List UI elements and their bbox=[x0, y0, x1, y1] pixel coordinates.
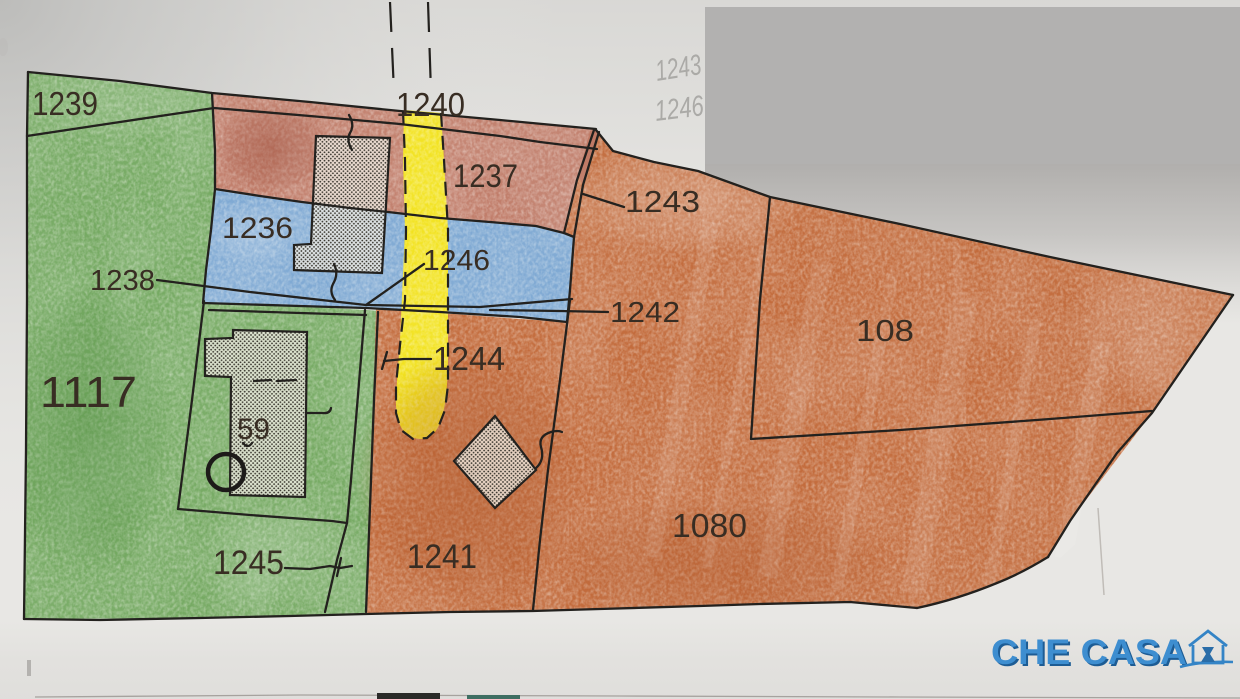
svg-text:108: 108 bbox=[856, 313, 914, 348]
svg-text:1245: 1245 bbox=[213, 544, 284, 582]
svg-text:1117: 1117 bbox=[40, 368, 137, 417]
svg-text:CHE CASA: CHE CASA bbox=[991, 633, 1187, 672]
svg-text:1241: 1241 bbox=[407, 538, 477, 576]
svg-text:1240: 1240 bbox=[396, 86, 465, 123]
svg-text:1242: 1242 bbox=[610, 297, 680, 329]
svg-text:1246: 1246 bbox=[653, 90, 706, 128]
svg-text:1236: 1236 bbox=[222, 212, 293, 245]
svg-text:1080: 1080 bbox=[672, 507, 747, 544]
svg-text:1238: 1238 bbox=[90, 265, 155, 297]
svg-text:1243: 1243 bbox=[625, 184, 700, 219]
svg-text:59: 59 bbox=[237, 413, 270, 446]
svg-text:1239: 1239 bbox=[32, 85, 98, 122]
svg-text:1246: 1246 bbox=[423, 245, 490, 277]
svg-text:1244: 1244 bbox=[433, 340, 505, 377]
svg-text:1237: 1237 bbox=[453, 158, 518, 194]
